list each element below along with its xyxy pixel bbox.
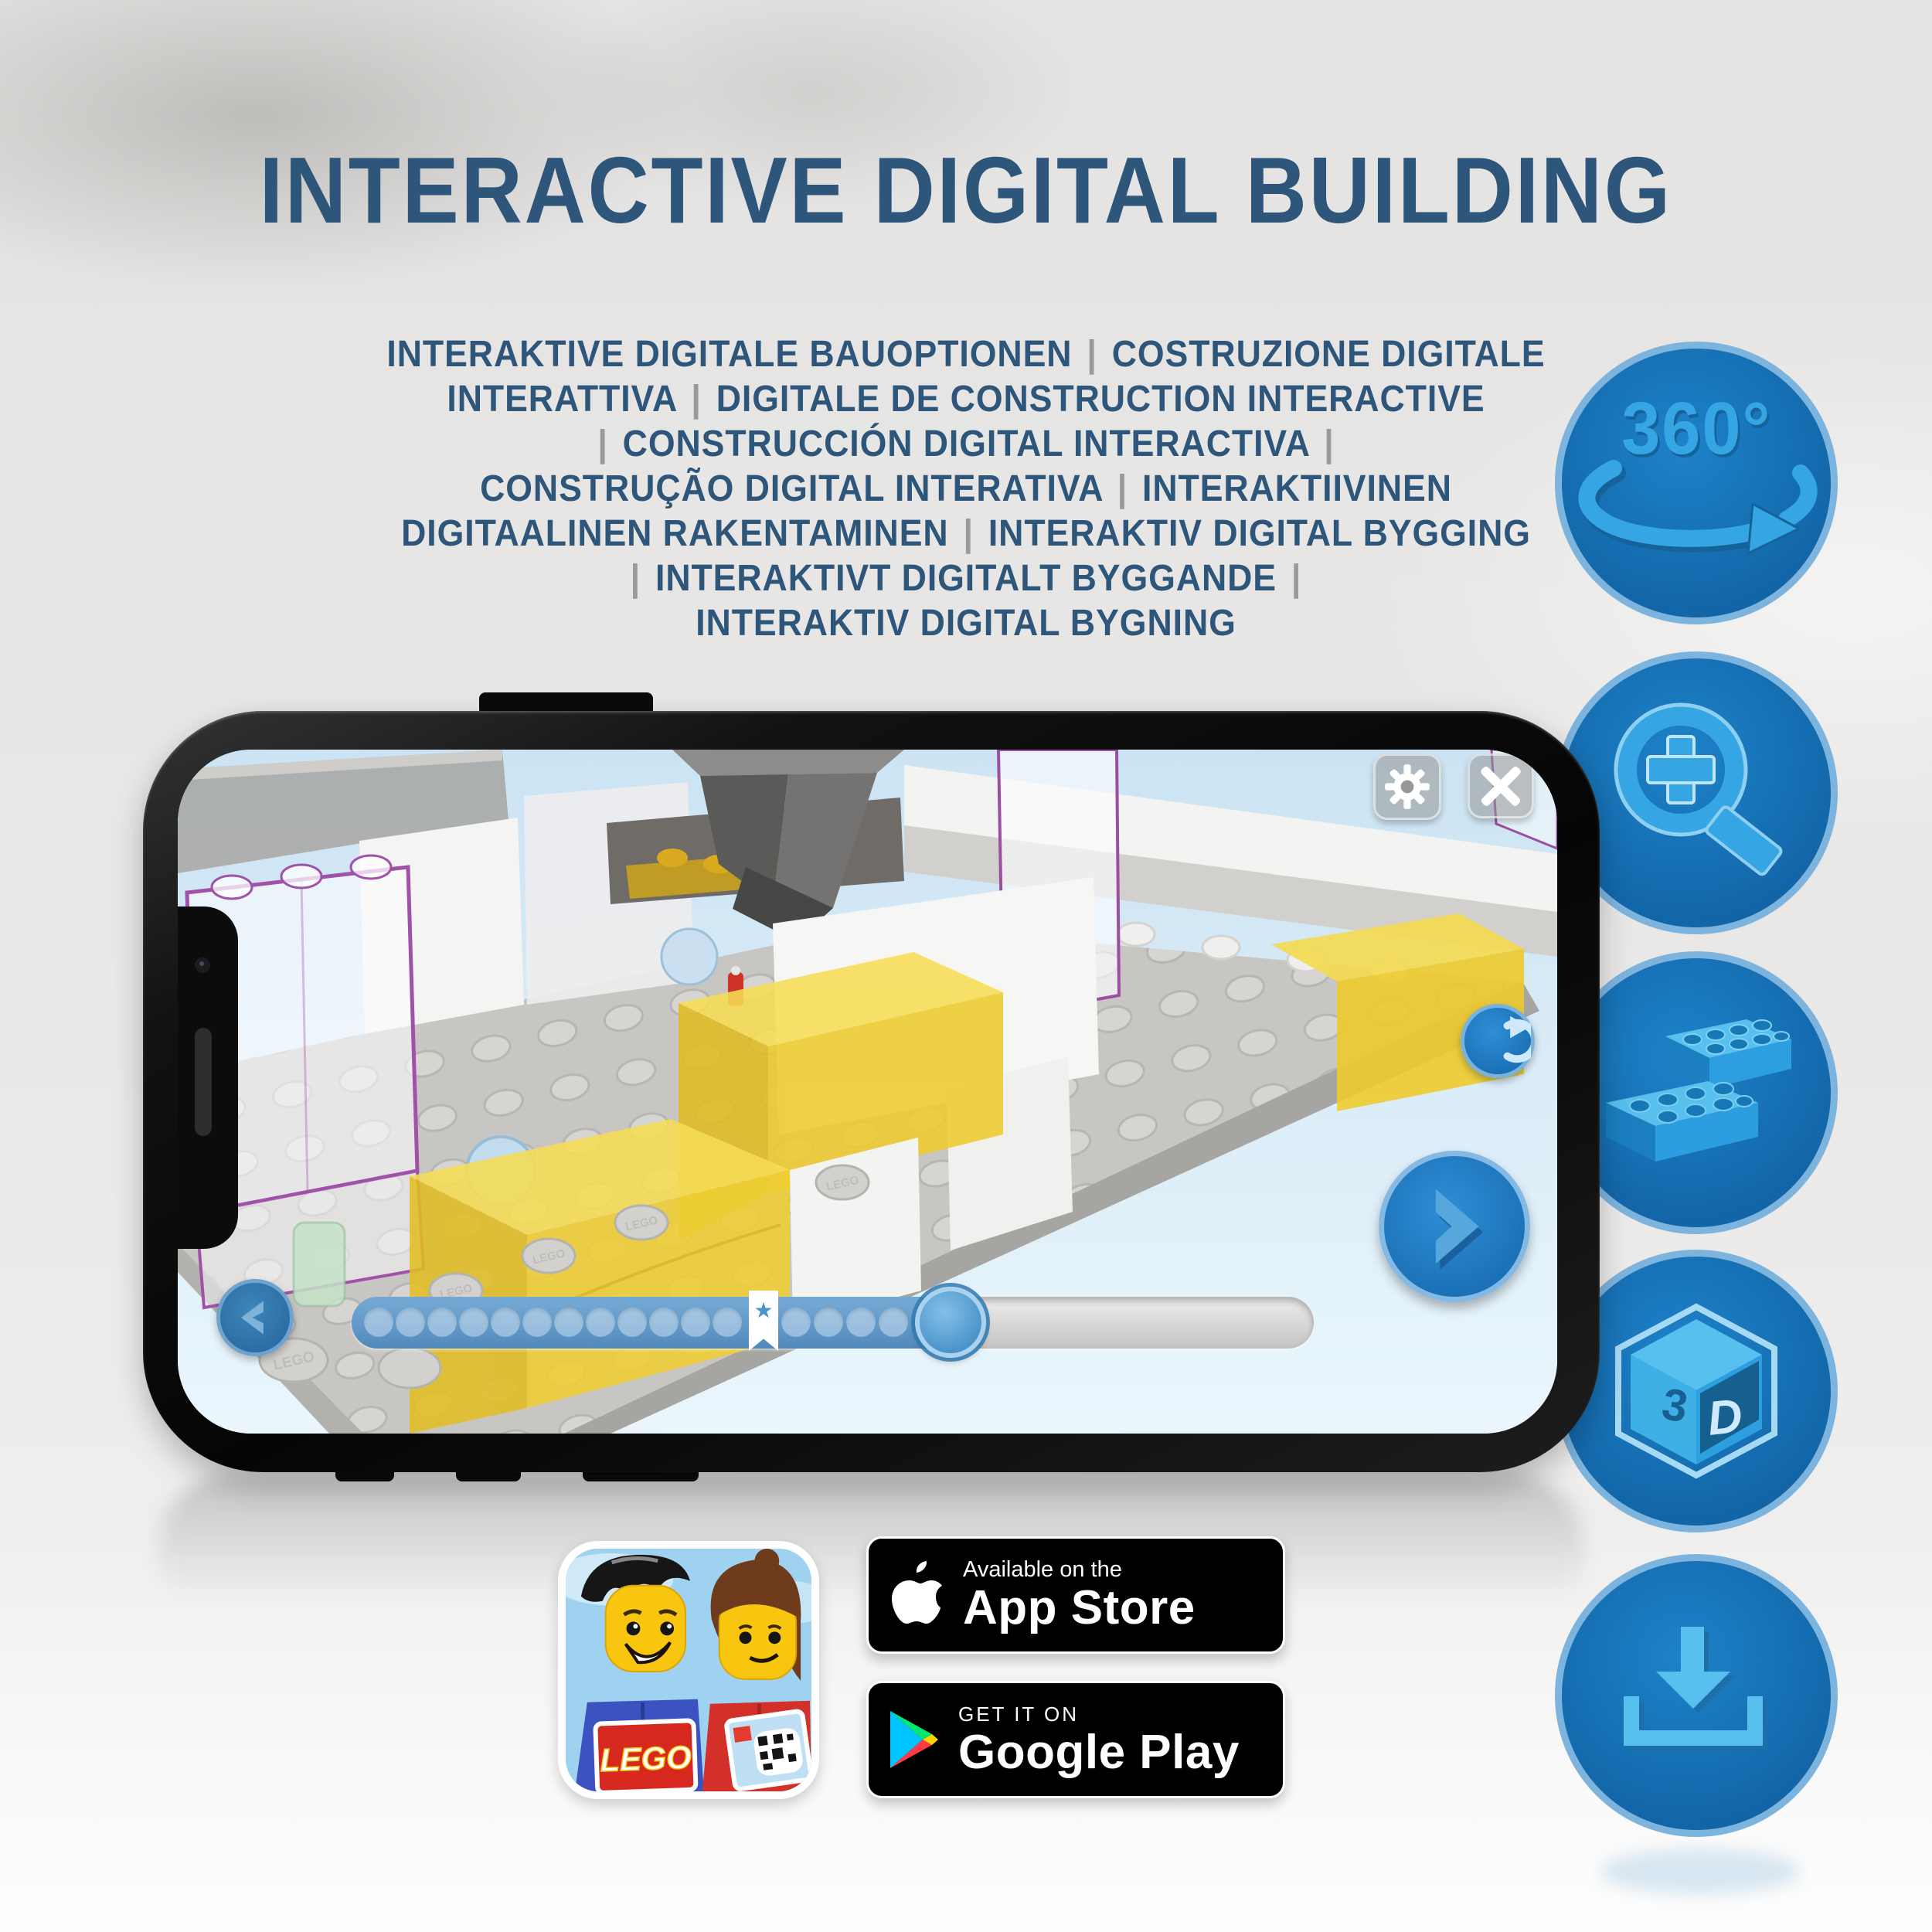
google-play-badge[interactable]: GET IT ON Google Play	[866, 1681, 1285, 1798]
progress-dot	[586, 1308, 615, 1337]
settings-button[interactable]	[1373, 753, 1441, 820]
phone-notch	[178, 906, 238, 1249]
subtitle-line: INTERAKTIVE DIGITALE BAUOPTIONEN | COSTR…	[334, 332, 1599, 377]
circle-reflection	[1600, 1849, 1801, 1895]
google-play-line2: Google Play	[958, 1727, 1240, 1778]
app-store-line1: Available on the	[963, 1556, 1196, 1583]
progress-dot	[781, 1308, 811, 1337]
app-store-line2: App Store	[963, 1583, 1196, 1634]
subtitle-line: INTERAKTIV DIGITAL BYGNING	[334, 601, 1599, 646]
page-title: INTERACTIVE DIGITAL BUILDING	[0, 136, 1932, 244]
progress-dot	[846, 1308, 876, 1337]
progress-dot	[522, 1308, 552, 1337]
subtitle-multilingual: INTERAKTIVE DIGITALE BAUOPTIONEN | COSTR…	[334, 332, 1599, 646]
phone-device: LEGO LEGO LEGO LEGO LEGO	[143, 711, 1600, 1472]
subtitle-line: INTERATTIVA | DIGITALE DE CONSTRUCTION I…	[334, 377, 1599, 422]
refresh-icon	[1464, 1008, 1531, 1074]
refresh-button[interactable]	[1461, 1004, 1535, 1078]
apple-icon	[890, 1561, 946, 1629]
google-play-line1: GET IT ON	[958, 1701, 1240, 1727]
front-camera	[195, 957, 210, 973]
subtitle-line: CONSTRUÇÃO DIGITAL INTERATIVA | INTERAKT…	[334, 467, 1599, 512]
progress-dot	[396, 1308, 425, 1337]
3d-cube-icon: 3 D	[1600, 1302, 1793, 1480]
app-store-badge[interactable]: Available on the App Store	[866, 1536, 1285, 1654]
chevron-right-icon	[1384, 1156, 1525, 1297]
zoom-in-icon	[1600, 696, 1793, 889]
gear-icon	[1376, 753, 1439, 820]
progress-dot	[459, 1308, 488, 1337]
earpiece-speaker	[195, 1028, 212, 1136]
progress-dot	[554, 1308, 583, 1337]
download-icon	[1604, 1614, 1789, 1777]
next-step-button[interactable]	[1379, 1151, 1530, 1302]
lego-logo-text: LEGO	[600, 1739, 692, 1778]
rotate-arrow-icon	[1569, 454, 1824, 578]
lego-app-icon[interactable]: LEGO	[558, 1541, 819, 1799]
lego-bricks-icon	[1592, 1004, 1801, 1182]
progress-dot	[713, 1308, 742, 1337]
progress-dot	[681, 1308, 710, 1337]
progress-dot	[617, 1308, 647, 1337]
subtitle-line: | INTERAKTIVT DIGITALT BYGGANDE |	[334, 556, 1599, 601]
subtitle-line: | CONSTRUCCIÓN DIGITAL INTERACTIVA |	[334, 422, 1599, 467]
progress-dot	[649, 1308, 679, 1337]
previous-step-button[interactable]	[216, 1279, 294, 1356]
phone-screen: LEGO LEGO LEGO LEGO LEGO	[178, 750, 1557, 1434]
chevron-left-icon	[220, 1283, 290, 1352]
progress-dot	[879, 1308, 908, 1337]
cube-text-d: D	[1705, 1389, 1745, 1446]
subtitle-line: DIGITAALINEN RAKENTAMINEN | INTERAKTIV D…	[334, 512, 1599, 556]
app-icon-art: LEGO	[566, 1549, 811, 1791]
progress-bar[interactable]: ★	[352, 1297, 1314, 1349]
progress-dot	[491, 1308, 520, 1337]
progress-dot	[364, 1308, 393, 1337]
progress-dot	[814, 1308, 843, 1337]
google-play-icon	[890, 1711, 941, 1768]
close-icon	[1470, 753, 1532, 818]
close-button[interactable]	[1468, 753, 1534, 818]
feature-badge-download	[1555, 1554, 1838, 1837]
progress-dot	[427, 1308, 457, 1337]
progress-thumb[interactable]	[915, 1287, 986, 1358]
